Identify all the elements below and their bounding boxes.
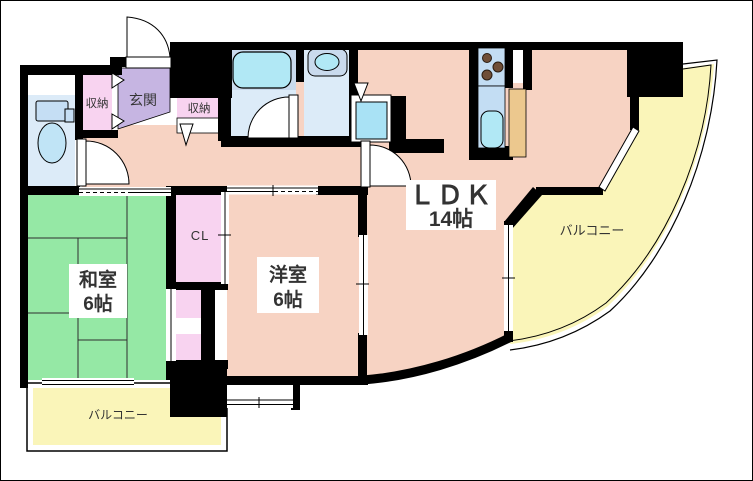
closet-cl-label: CL	[191, 228, 210, 243]
washing-machine-icon	[356, 102, 387, 139]
slider-washitsu-north	[79, 187, 171, 196]
balcony-bottom-label: バルコニー	[88, 408, 148, 422]
pillar-bottom-left	[170, 364, 227, 417]
entrance-door-panel	[126, 57, 171, 68]
balcony-right-label: バルコニー	[560, 223, 625, 238]
washitsu-label: 和室	[79, 268, 117, 291]
window-washitsu-south	[42, 378, 134, 387]
toilet-paper-holder	[65, 109, 74, 122]
ldk-label: ＬＤＫ	[409, 180, 493, 210]
storage2-label: 収納	[188, 102, 211, 115]
bathtub-icon	[233, 52, 291, 88]
kitchen-gap	[513, 50, 523, 83]
washing-machine	[351, 95, 391, 142]
youshitsu-label: 洋室	[269, 263, 307, 286]
toilet-door-panel	[77, 139, 86, 186]
toilet-tank	[36, 101, 68, 121]
floorplan-drawing: ＬＤＫ 14帖 和室 6帖 洋室 6帖 玄関 収納 収納 CL バルコニー バル…	[0, 0, 753, 481]
ldk-size-label: 14帖	[429, 208, 473, 231]
stove-burner-icon	[493, 62, 503, 72]
kitchen-counter-top	[509, 89, 526, 157]
hall-ldk-door-panel	[361, 141, 370, 187]
stove-burner-icon	[482, 70, 492, 80]
washitsu-size-label: 6帖	[83, 292, 113, 315]
floorplan-page: ＬＤＫ 14帖 和室 6帖 洋室 6帖 玄関 収納 収納 CL バルコニー バル…	[0, 0, 753, 481]
closet-lower-divider	[175, 318, 202, 334]
toilet-room	[28, 74, 75, 186]
bath-door-panel	[289, 95, 298, 138]
washroom	[304, 48, 350, 137]
washbasin-icon	[315, 54, 339, 71]
stove-burner-icon	[483, 54, 492, 63]
kitchen-sink-icon	[481, 111, 503, 148]
toilet-upper	[28, 74, 75, 96]
pillar-top-right	[627, 42, 683, 97]
toilet-bowl-icon	[38, 123, 66, 163]
storage1-label: 収納	[86, 97, 109, 110]
genkan-label: 玄関	[129, 92, 157, 108]
youshitsu-size-label: 6帖	[273, 288, 303, 311]
kitchen	[478, 48, 526, 157]
